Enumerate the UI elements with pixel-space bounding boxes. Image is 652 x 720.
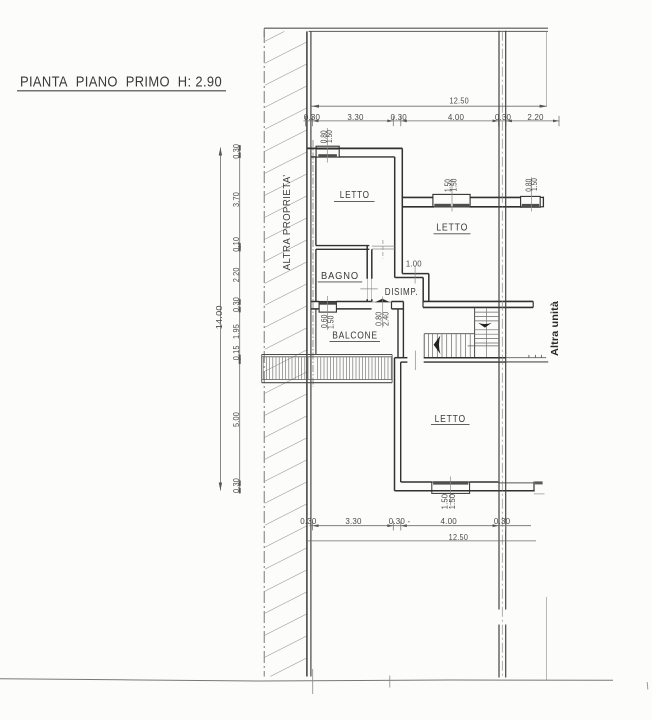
svg-text:LETTO: LETTO xyxy=(435,414,466,425)
svg-text:1.50: 1.50 xyxy=(450,178,459,191)
svg-text:BAGNO: BAGNO xyxy=(321,271,359,282)
svg-text:12.50: 12.50 xyxy=(449,97,469,106)
svg-text:1.50: 1.50 xyxy=(530,178,539,191)
svg-text:0.15: 0.15 xyxy=(232,345,241,360)
svg-text:4.00: 4.00 xyxy=(441,517,458,526)
svg-text:0.30: 0.30 xyxy=(300,517,317,526)
svg-text:0.30: 0.30 xyxy=(232,144,241,159)
svg-text:2.40: 2.40 xyxy=(382,311,391,326)
svg-text:0.30: 0.30 xyxy=(494,517,511,526)
svg-text:DISIMP.: DISIMP. xyxy=(385,287,419,298)
svg-text:14.00: 14.00 xyxy=(215,305,224,329)
svg-text:PIANTA PIANO PRIMO H: 2.90: PIANTA PIANO PRIMO H: 2.90 xyxy=(20,75,222,91)
svg-text:3.70: 3.70 xyxy=(232,192,241,207)
svg-text:2.20: 2.20 xyxy=(527,113,544,122)
svg-text:ALTRA PROPRIETA’: ALTRA PROPRIETA’ xyxy=(282,174,293,270)
svg-text:5.00: 5.00 xyxy=(232,412,241,427)
svg-text:2.20: 2.20 xyxy=(232,267,241,282)
svg-text:0.10: 0.10 xyxy=(232,237,241,252)
svg-text:1.50: 1.50 xyxy=(325,130,334,143)
svg-text:1.95: 1.95 xyxy=(232,324,241,339)
svg-text:LETTO: LETTO xyxy=(436,223,468,234)
svg-text:1.50: 1.50 xyxy=(327,315,336,329)
svg-text:1.00: 1.00 xyxy=(406,259,422,268)
svg-text:0.30: 0.30 xyxy=(232,297,241,312)
svg-text:3.30: 3.30 xyxy=(345,517,362,526)
svg-text:0.30: 0.30 xyxy=(391,113,408,122)
svg-text:0.30: 0.30 xyxy=(495,113,512,122)
svg-text:LETTO: LETTO xyxy=(340,190,370,201)
svg-text:12.50: 12.50 xyxy=(449,533,469,542)
svg-text:0.30 -: 0.30 - xyxy=(389,517,411,526)
svg-text:0.30: 0.30 xyxy=(232,478,241,493)
svg-text:0.30: 0.30 xyxy=(304,113,321,122)
svg-text:3.30: 3.30 xyxy=(347,113,364,122)
svg-text:4.00: 4.00 xyxy=(448,113,465,122)
svg-text:BALCONE: BALCONE xyxy=(332,331,378,342)
svg-text:1.50: 1.50 xyxy=(448,493,457,509)
svg-text:Altra unità: Altra unità xyxy=(550,301,561,356)
